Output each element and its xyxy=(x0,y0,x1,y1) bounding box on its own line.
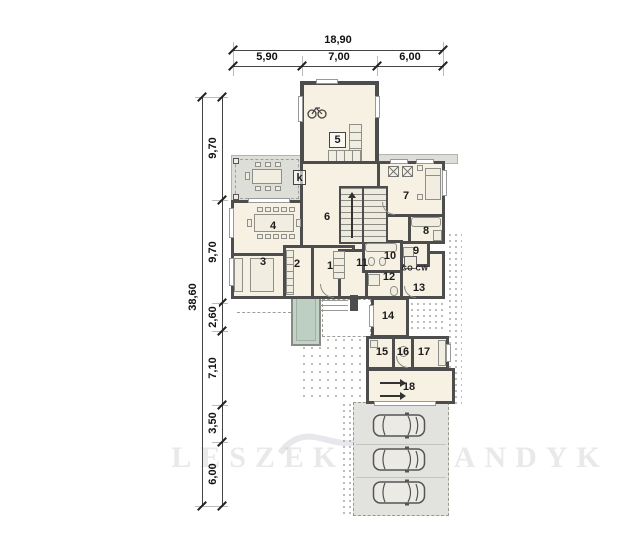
dim-top-seg-line xyxy=(233,66,443,67)
stair-arrow-head-icon xyxy=(348,192,356,198)
window xyxy=(248,198,290,203)
dim-left-seg4-label: 7,10 xyxy=(207,355,219,380)
room-label-10: 10 xyxy=(384,250,396,262)
chair xyxy=(281,207,287,212)
dim-top-total-label: 18,90 xyxy=(322,34,354,46)
bed-pillow-line xyxy=(426,175,440,176)
chair xyxy=(281,234,287,239)
room-label-9: 9 xyxy=(413,245,419,257)
window xyxy=(229,208,234,238)
chair xyxy=(273,207,279,212)
window xyxy=(390,159,408,164)
wardrobe-icon xyxy=(388,166,399,177)
dim-top-seg3-label: 6,00 xyxy=(397,51,422,63)
terrace-chair xyxy=(255,186,261,191)
garage-door xyxy=(374,401,436,406)
chair xyxy=(289,207,295,212)
chair xyxy=(296,219,301,227)
fireplace-label: k xyxy=(296,172,302,184)
room-label-15: 15 xyxy=(376,346,388,358)
window xyxy=(446,344,451,362)
room-label-4: 4 xyxy=(270,220,276,232)
terrace-column xyxy=(233,158,239,164)
terrace-chair xyxy=(255,162,261,167)
stair-divider xyxy=(362,188,364,242)
room-label-7: 7 xyxy=(403,190,409,202)
dim-left-seg3-label: 2,60 xyxy=(207,304,219,329)
chair xyxy=(247,219,252,227)
window xyxy=(316,79,338,84)
driveway-edge-hatch xyxy=(341,402,353,516)
terrace-chair xyxy=(275,186,281,191)
window xyxy=(442,170,447,196)
floor-plan-canvas: 18,90 5,90 7,00 6,00 38,60 9,70 9,70 2,6… xyxy=(0,0,638,556)
room-label-5: 5 xyxy=(334,134,340,146)
terrace-chair xyxy=(245,172,250,180)
entrance-pillar xyxy=(350,295,358,311)
wardrobe-icon xyxy=(402,166,413,177)
nightstand xyxy=(417,165,423,171)
car-icon xyxy=(372,446,426,473)
chair xyxy=(257,234,263,239)
room-label-6: 6 xyxy=(324,211,330,223)
parking-divider xyxy=(356,477,446,478)
chair xyxy=(265,207,271,212)
paving-court-east xyxy=(409,301,445,332)
dim-left-total-label: 38,60 xyxy=(187,281,199,313)
room-label-13: 13 xyxy=(413,282,425,294)
room-label-2: 2 xyxy=(294,258,300,270)
drive-in-arrow-head-icon xyxy=(400,392,406,400)
terrace-chair xyxy=(265,186,271,191)
window xyxy=(369,305,374,327)
fireplace-box: k xyxy=(293,170,306,185)
chair xyxy=(273,234,279,239)
room-label-18: 18 xyxy=(403,381,415,393)
shower xyxy=(368,274,380,286)
room-label-12: 12 xyxy=(383,271,395,283)
bed xyxy=(425,168,441,200)
terrace-table xyxy=(252,169,282,184)
dim-left-seg5-label: 3,50 xyxy=(207,410,219,435)
chair xyxy=(257,207,263,212)
entrance-steps xyxy=(320,300,348,314)
drive-in-arrow-icon xyxy=(380,395,400,397)
window xyxy=(416,159,434,164)
terrace-chair xyxy=(265,162,271,167)
hall-wardrobe xyxy=(333,251,345,279)
dim-top-seg1-label: 5,90 xyxy=(254,51,279,63)
dim-left-seg2-label: 9,70 xyxy=(207,239,219,264)
car-icon xyxy=(372,479,426,506)
room-label-3: 3 xyxy=(260,256,266,268)
boiler-label: CO CW xyxy=(402,266,429,273)
window xyxy=(375,96,380,118)
toilet xyxy=(390,286,398,296)
bench xyxy=(438,340,446,366)
car-icon xyxy=(372,412,426,439)
pantry-shelves xyxy=(286,250,294,295)
chair xyxy=(289,234,295,239)
parking-divider xyxy=(356,444,446,445)
dim-top-seg2-label: 7,00 xyxy=(326,51,351,63)
room-label-8: 8 xyxy=(423,225,429,237)
room-label-14: 14 xyxy=(382,310,394,322)
window xyxy=(298,96,303,122)
room-label-1: 1 xyxy=(327,260,333,272)
drive-in-arrow-icon xyxy=(380,382,400,384)
bicycle-icon xyxy=(307,104,327,119)
terrace-edge-dashed xyxy=(237,312,291,313)
room-label-17: 17 xyxy=(418,346,430,358)
stair-arrow-icon xyxy=(351,194,353,238)
sink xyxy=(433,230,442,241)
toilet xyxy=(368,257,375,266)
chair xyxy=(265,234,271,239)
kitchen-counter xyxy=(234,258,243,292)
nightstand xyxy=(417,194,423,200)
dim-left-seg1-label: 9,70 xyxy=(207,135,219,160)
room-label-5-box: 5 xyxy=(329,132,346,148)
terrace-chair xyxy=(275,162,281,167)
room-label-11: 11 xyxy=(356,257,368,269)
room-label-16: 16 xyxy=(397,346,409,358)
